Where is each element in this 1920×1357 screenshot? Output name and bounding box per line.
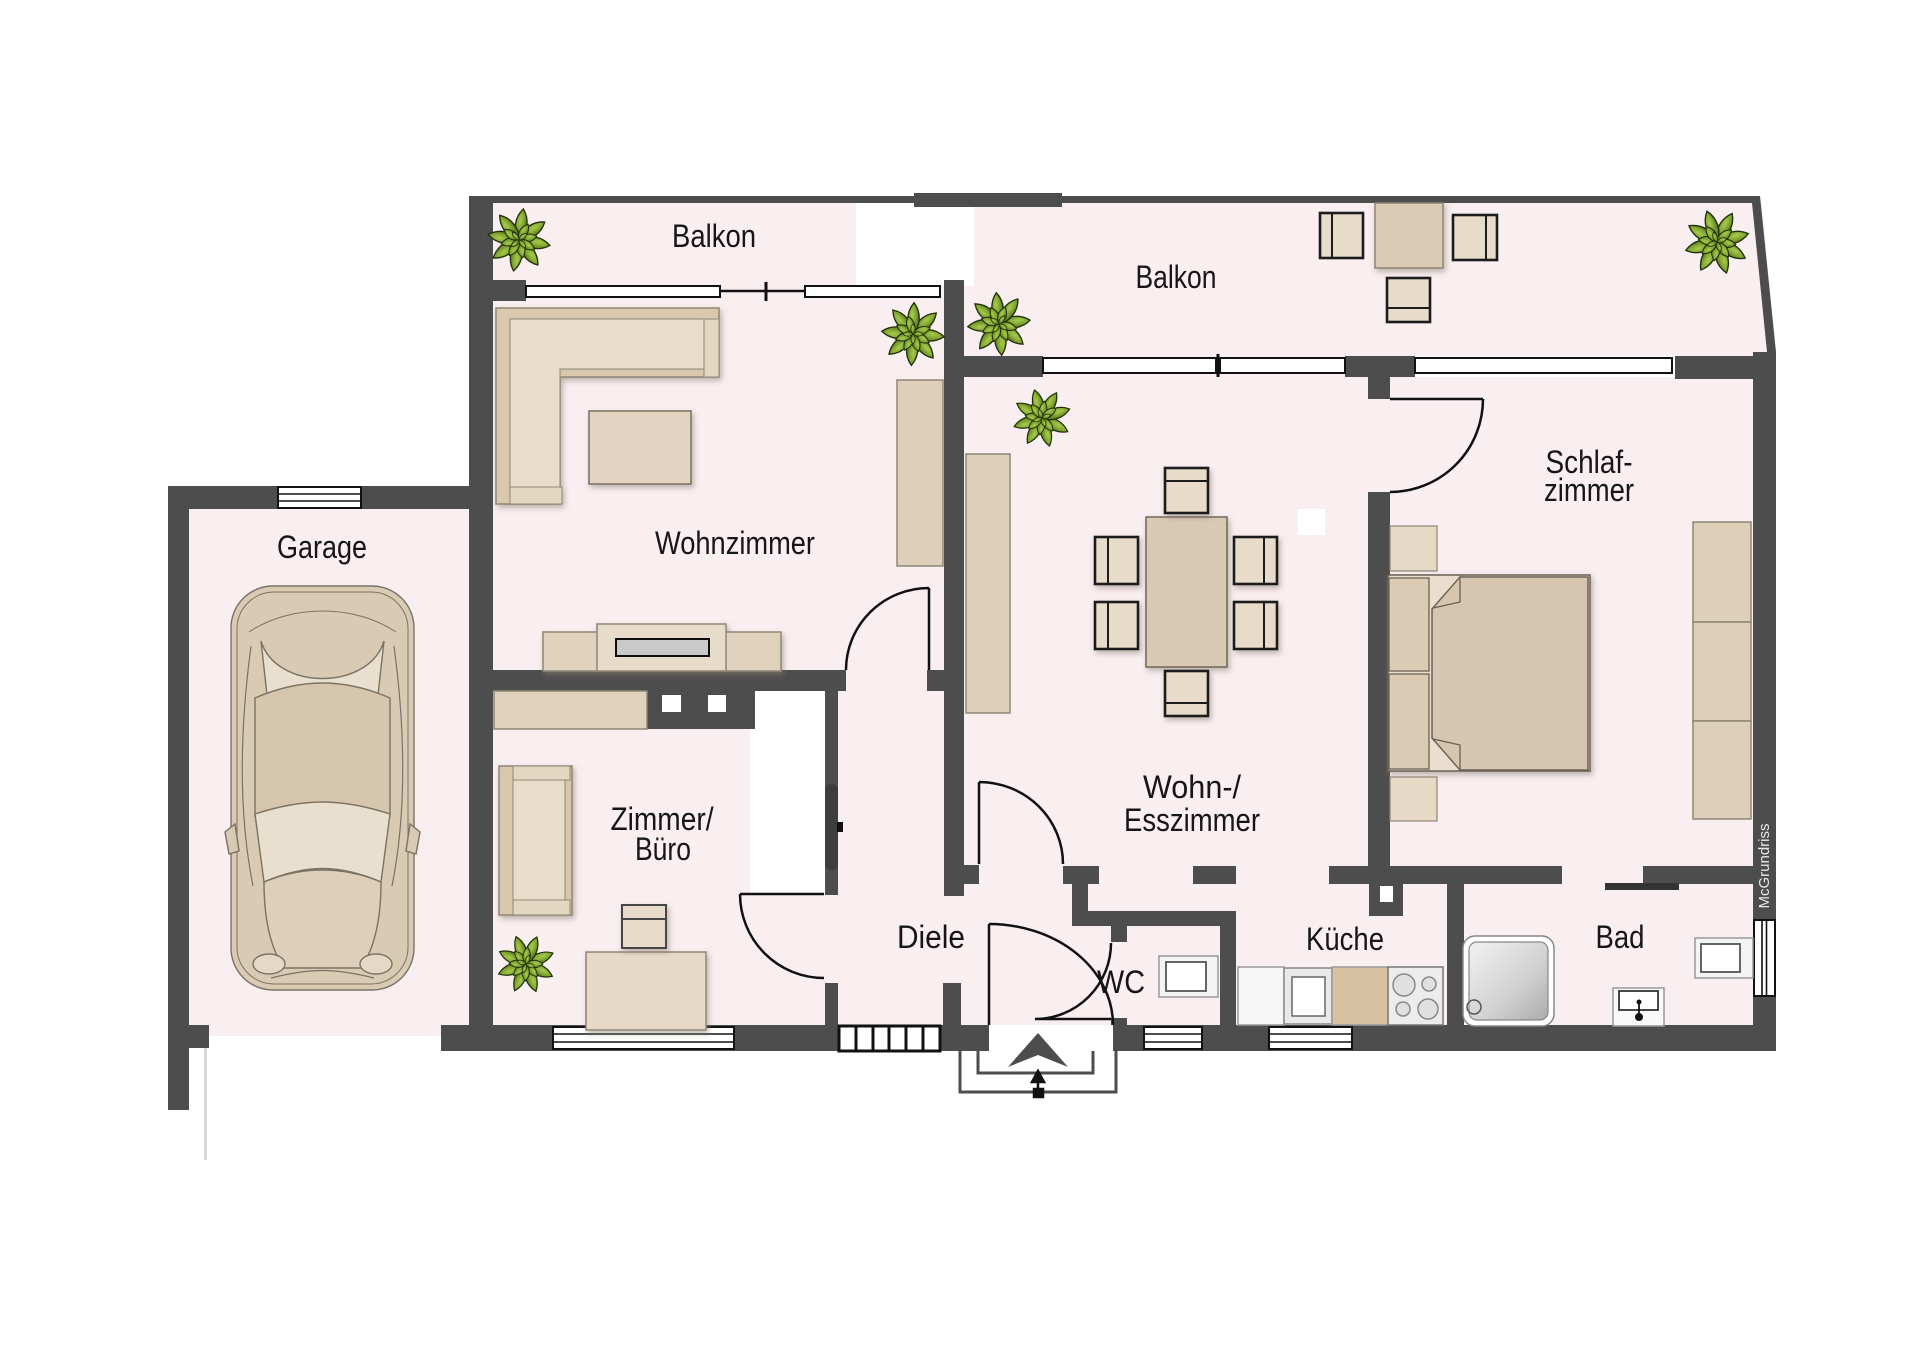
svg-text:Bad: Bad (1596, 919, 1645, 955)
svg-text:zimmer: zimmer (1544, 472, 1634, 508)
svg-text:WC: WC (1097, 964, 1145, 1000)
svg-text:Küche: Küche (1306, 921, 1384, 957)
svg-text:Garage: Garage (277, 529, 367, 565)
svg-text:Diele: Diele (897, 919, 965, 955)
svg-text:Büro: Büro (635, 831, 691, 867)
svg-text:Wohnzimmer: Wohnzimmer (655, 525, 815, 561)
svg-text:Balkon: Balkon (1136, 259, 1217, 295)
svg-text:Esszimmer: Esszimmer (1124, 802, 1260, 838)
svg-text:Balkon: Balkon (672, 218, 756, 254)
svg-text:Wohn-/: Wohn-/ (1143, 769, 1241, 805)
svg-text:McGrundriss: McGrundriss (1756, 823, 1773, 908)
